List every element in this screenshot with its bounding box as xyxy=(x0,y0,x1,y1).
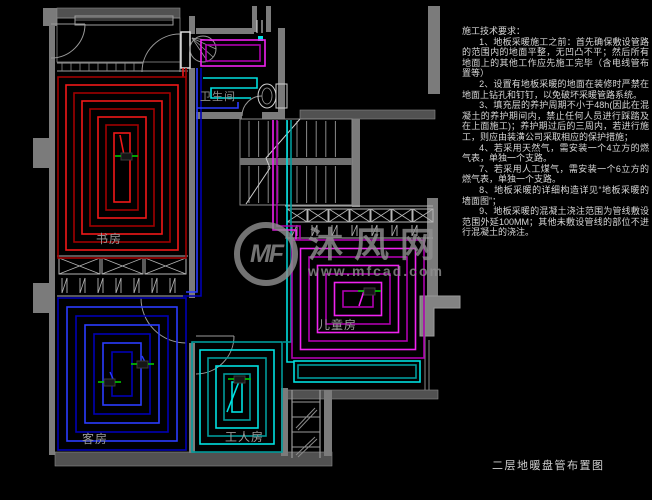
coil-kids-return xyxy=(294,361,420,382)
room-label-guest: 客房 xyxy=(82,430,108,447)
watermark: MF 沐风网 www.mfcad.com xyxy=(234,222,446,286)
bay-window-left xyxy=(57,256,188,296)
note-item: 4、若采用天然气，需安装一个4立方的燃气表，单独一个支路。 xyxy=(462,143,649,164)
note-item: 3、填充层的养护周期不小于48h(因此在混凝土的养护期间内，禁止任何人员进行踩踏… xyxy=(462,100,649,142)
notes-title: 施工技术要求： xyxy=(462,26,649,37)
note-item: 8、地板采暖的详细构造详见“地板采暖的墙面图”； xyxy=(462,185,649,206)
room-label-bathroom: 卫生间 xyxy=(200,88,236,104)
note-item: 9、地板采暖的混凝土浇注范围为管线敷设范围外延100MM；其他未敷设管线的部位不… xyxy=(462,206,649,238)
room-label-kids: 儿童房 xyxy=(318,316,357,333)
watermark-site-url: www.mfcad.com xyxy=(308,263,446,279)
room-label-worker: 工人房 xyxy=(225,428,264,445)
ladder xyxy=(292,390,320,458)
note-item: 2、设置有地板采暖的地面在装修时严禁在地面上钻孔和钉钉，以免破坏采暖管路系统。 xyxy=(462,79,649,100)
note-item: 7、若采用人工煤气，需安装一个6立方的燃气表，单独一个支路。 xyxy=(462,164,649,185)
watermark-text: 沐风网 www.mfcad.com xyxy=(308,229,446,279)
note-item: 1、地板采暖施工之前：首先确保敷设管路的范围内的地面平整，无凹凸不平；然后所有地… xyxy=(462,37,649,79)
cad-viewport: 书房 客房 卫生间 儿童房 工人房 MF 沐风网 www.mfcad.com 施… xyxy=(0,0,652,500)
drawing-title: 二层地暖盘管布置图 xyxy=(492,457,605,473)
staircase xyxy=(240,119,352,205)
construction-notes: 施工技术要求： 1、地板采暖施工之前：首先确保敷设管路的范围内的地面平整，无凹凸… xyxy=(462,26,649,238)
mfcad-logo-icon: MF xyxy=(234,222,298,286)
room-label-study: 书房 xyxy=(96,230,122,247)
coil-guest xyxy=(58,298,186,450)
mfcad-logo-text: MF xyxy=(250,240,282,269)
watermark-site-name: 沐风网 xyxy=(308,229,446,263)
